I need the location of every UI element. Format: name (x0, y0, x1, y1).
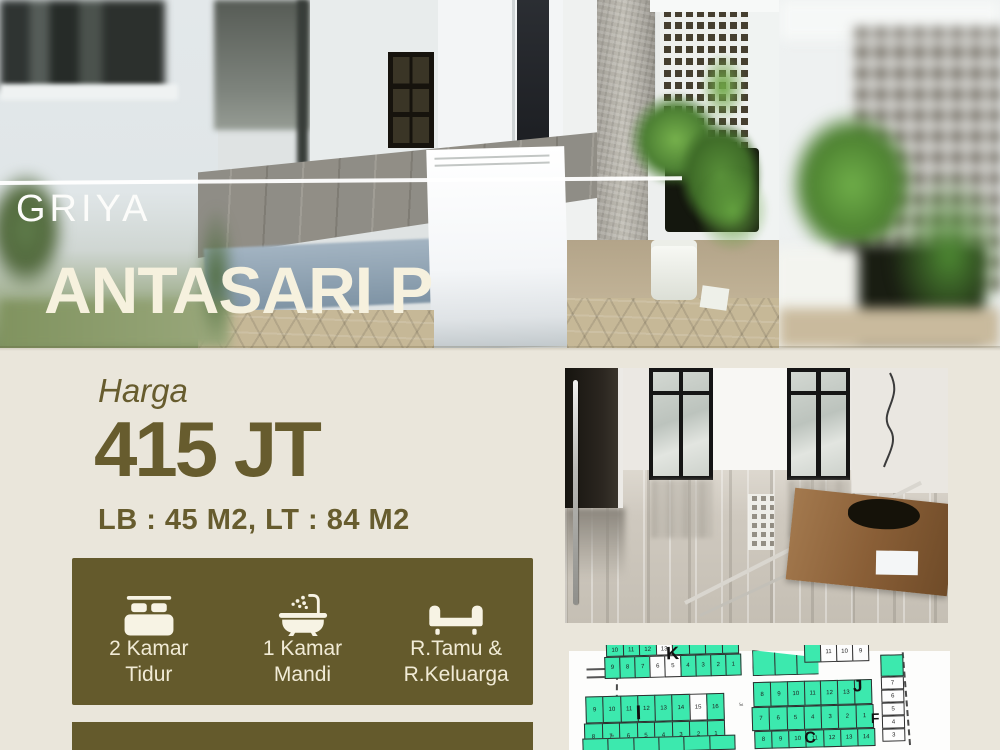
map-lot-cell: 10 (836, 645, 854, 662)
map-lot-cell: 12 (639, 645, 657, 656)
feature-bedrooms: 2 Kamar Tidur (72, 572, 226, 689)
glass-door (787, 368, 850, 480)
building-land-specs: LB : 45 M2, LT : 84 M2 (98, 504, 410, 537)
map-lot-cell: 11 (803, 680, 822, 705)
map-row: 7654321 (752, 704, 874, 731)
map-street-label: Jl (608, 734, 614, 738)
map-row: 910111213141516 (585, 693, 724, 724)
map-lot-cell: 5 (881, 702, 904, 716)
property-flyer: GRIYA ANTASARI P Harga 415 JT LB : 45 M2… (0, 0, 1000, 750)
map-street-label: Jl (737, 702, 743, 706)
map-row: 4 (882, 715, 904, 729)
map-lot-cell: 4 (803, 705, 822, 729)
brand-name-top: GRIYA (16, 188, 151, 231)
site-map-blocks: 1011121398765432111109910111213141516876… (567, 645, 950, 750)
map-lot-cell (880, 654, 904, 677)
glass-door (649, 368, 713, 480)
feature-label: Mandi (274, 662, 331, 688)
sofa-icon (425, 572, 487, 636)
photo-layer (650, 0, 780, 12)
map-row: 11109 (820, 645, 869, 662)
map-lot-cell (658, 736, 685, 750)
photo-layer (0, 84, 178, 100)
map-block-letter: I (635, 703, 641, 723)
map-lot-cell: 2 (838, 704, 857, 728)
front-door (438, 0, 565, 160)
map-block-letter: J (853, 677, 863, 694)
door-handle-bar (573, 380, 578, 605)
wooden-table (786, 488, 948, 596)
map-lot-cell: 12 (820, 680, 839, 705)
map-lot-cell (684, 735, 711, 750)
map-lot-cell (705, 645, 723, 654)
map-lot-cell: 6 (769, 706, 788, 730)
floor-reflection (651, 480, 713, 538)
map-lot-cell: 13 (654, 694, 673, 721)
site-map: 1011121398765432111109910111213141516876… (567, 645, 950, 750)
map-lot-cell: 10 (602, 696, 621, 723)
window-blurred (0, 0, 165, 90)
breeze-block-reflection (748, 494, 774, 550)
map-lot-cell: 3 (821, 705, 840, 729)
photo-layer (700, 285, 730, 311)
map-lot-cell: 3 (882, 728, 905, 742)
wall-cap-lines (434, 155, 549, 167)
hanging-cable (860, 371, 906, 476)
feature-label: 1 Kamar (263, 636, 342, 662)
door-frame (512, 0, 515, 152)
plant (700, 52, 746, 122)
map-row: 6 (881, 689, 903, 703)
paper-sheet (876, 550, 918, 575)
map-lot-cell: 5 (786, 706, 805, 730)
carport-shadow (214, 0, 310, 130)
black-cloth (847, 498, 920, 530)
map-lot-cell: 7 (881, 676, 904, 690)
map-lot-cell: 9 (604, 657, 621, 679)
map-lot-cell: 6 (649, 655, 666, 677)
bath-icon (276, 572, 330, 636)
map-lot-cell: 14 (671, 694, 690, 721)
map-lot-cell: 12 (823, 729, 842, 747)
interior-photo (565, 368, 948, 623)
map-row: 3 (882, 728, 904, 742)
hero-photo: GRIYA ANTASARI P (0, 0, 1000, 348)
bottom-olive-panel (72, 722, 533, 750)
map-lot-cell: 16 (706, 693, 725, 720)
price-value: 415 JT (94, 410, 319, 488)
map-lot-cell: 8 (754, 731, 773, 749)
brand-name-bottom: ANTASARI P (44, 252, 432, 328)
map-lot-cell: 3 (695, 654, 712, 676)
map-row (880, 654, 903, 677)
feature-livingroom: R.Tamu & R.Keluarga (379, 572, 533, 689)
plant (695, 168, 770, 253)
feature-bathrooms: 1 Kamar Mandi (226, 572, 380, 689)
post (297, 0, 308, 165)
paint-bucket (651, 240, 697, 300)
map-lot-cell: 4 (882, 715, 905, 729)
map-block-letter: C (804, 731, 816, 747)
map-lot-cell: 9 (770, 681, 789, 706)
map-lot-cell: 2 (710, 654, 727, 676)
map-lot-cell: 9 (771, 730, 790, 748)
map-row: 7 (881, 676, 903, 690)
map-lot-cell: 15 (689, 693, 708, 720)
map-lot-cell: 11 (622, 645, 640, 657)
door-slab (517, 0, 549, 152)
feature-box: 2 Kamar Tidur 1 Kamar Mandi (72, 558, 533, 705)
map-lot-cell (688, 645, 706, 655)
map-lot-cell (608, 737, 635, 750)
map-row: 5 (881, 702, 903, 716)
map-lot-cell (633, 737, 660, 750)
map-lot-cell: 4 (680, 655, 697, 677)
map-lot-cell (582, 738, 609, 750)
ground-blur (779, 308, 1000, 348)
map-lot-cell (709, 735, 736, 750)
map-row (804, 645, 821, 663)
feature-label: R.Tamu & (410, 636, 502, 662)
map-lot-cell: 6 (881, 689, 904, 703)
paving-stones (567, 298, 812, 348)
map-lot-cell: 10 (787, 681, 806, 706)
blurred-right-zone (779, 0, 1000, 348)
map-lot-cell: 11 (820, 645, 838, 662)
map-lot-cell: 7 (634, 656, 651, 678)
feature-label: 2 Kamar (109, 636, 188, 662)
feature-label: R.Keluarga (404, 662, 509, 688)
map-block-letter: F (871, 711, 880, 725)
feature-label: Tidur (125, 662, 172, 688)
section-divider (0, 346, 1000, 351)
map-lot-cell (752, 650, 776, 677)
map-lot-cell (804, 645, 822, 663)
map-lot-cell: 8 (619, 656, 636, 678)
grid-window (388, 52, 434, 148)
map-lot-cell: 8 (753, 682, 772, 707)
map-lot-cell: 9 (852, 645, 870, 662)
map-block-letter: K (666, 645, 679, 662)
map-lot-cell: 10 (606, 645, 624, 657)
map-lot-cell: 14 (857, 728, 876, 746)
map-lot-cell: 7 (752, 707, 771, 731)
map-lot-cell: 9 (585, 696, 604, 723)
window-mullions (393, 57, 429, 143)
map-lot-cell: 13 (840, 728, 859, 746)
map-lot-cell: 1 (725, 653, 742, 675)
map-lot-cell (774, 649, 798, 676)
bed-icon (119, 572, 179, 636)
